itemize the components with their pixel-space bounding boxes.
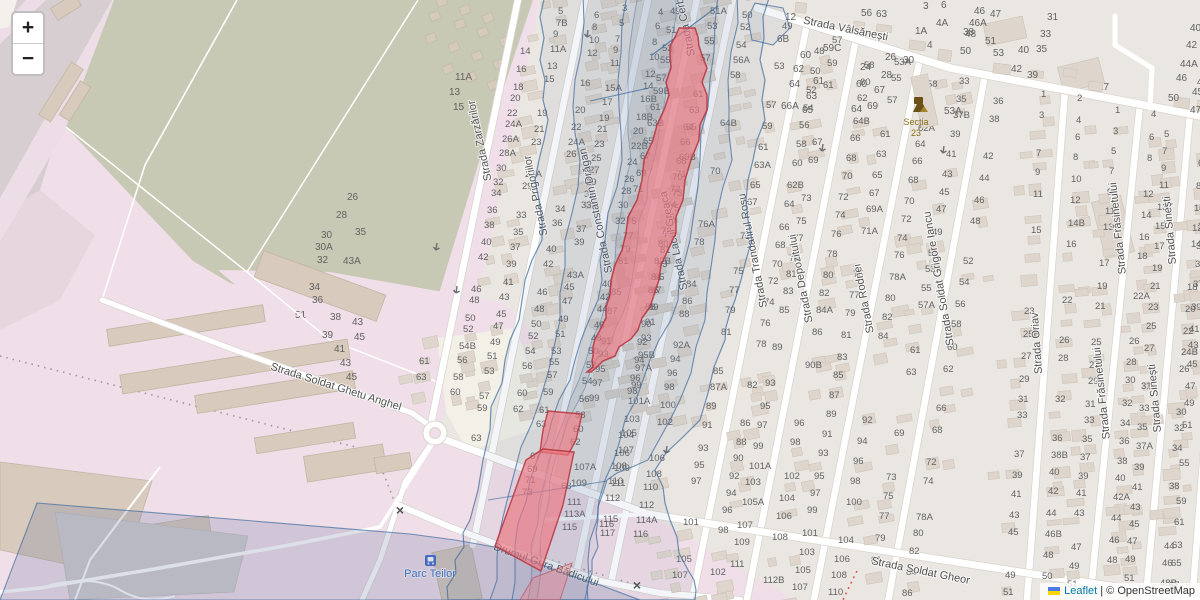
svg-text:63: 63 [1172, 540, 1183, 551]
svg-text:39: 39 [506, 259, 517, 270]
svg-text:28: 28 [1126, 357, 1137, 368]
svg-text:3: 3 [1113, 126, 1118, 137]
svg-text:106: 106 [776, 511, 792, 522]
svg-text:5: 5 [1111, 146, 1116, 157]
svg-text:65: 65 [1171, 558, 1182, 569]
svg-text:86: 86 [812, 327, 823, 338]
svg-text:53A: 53A [944, 106, 962, 117]
svg-text:28: 28 [1058, 353, 1069, 364]
svg-text:58: 58 [796, 139, 807, 150]
svg-text:79: 79 [845, 308, 856, 319]
svg-text:63: 63 [876, 149, 887, 160]
svg-text:82: 82 [819, 288, 830, 299]
svg-text:51: 51 [985, 36, 997, 47]
svg-text:66: 66 [850, 133, 861, 144]
svg-text:38: 38 [989, 114, 1000, 125]
svg-text:47: 47 [936, 204, 947, 215]
svg-text:101: 101 [683, 517, 699, 528]
svg-text:109: 109 [734, 537, 750, 548]
svg-text:85: 85 [713, 366, 724, 377]
svg-text:26: 26 [347, 192, 359, 203]
svg-text:42: 42 [1048, 486, 1059, 497]
svg-text:96: 96 [853, 456, 864, 467]
svg-text:93: 93 [698, 443, 709, 454]
svg-text:93: 93 [765, 378, 776, 389]
svg-text:37A: 37A [1136, 441, 1154, 452]
svg-text:59: 59 [1176, 496, 1187, 507]
svg-text:91: 91 [702, 420, 713, 431]
svg-text:35: 35 [1137, 422, 1148, 433]
svg-text:12: 12 [1143, 189, 1154, 200]
svg-text:32: 32 [317, 255, 329, 266]
svg-text:35: 35 [1036, 44, 1048, 55]
svg-text:61: 61 [880, 129, 891, 140]
svg-text:3: 3 [1039, 110, 1044, 121]
svg-text:62: 62 [793, 64, 805, 75]
svg-text:58: 58 [453, 372, 464, 383]
svg-text:80: 80 [913, 528, 924, 539]
svg-text:85: 85 [833, 370, 844, 381]
svg-text:31: 31 [1047, 12, 1059, 23]
svg-text:29: 29 [1019, 374, 1030, 385]
svg-text:37: 37 [510, 242, 521, 253]
svg-text:75: 75 [796, 216, 807, 227]
svg-text:74: 74 [897, 233, 908, 244]
svg-text:45: 45 [354, 332, 366, 343]
svg-text:66: 66 [779, 222, 790, 233]
svg-text:35: 35 [956, 94, 967, 105]
svg-text:46: 46 [974, 6, 986, 17]
svg-text:53: 53 [484, 366, 495, 377]
svg-text:14B: 14B [1068, 218, 1085, 229]
svg-text:51: 51 [1003, 587, 1014, 598]
svg-text:103: 103 [799, 547, 815, 558]
svg-text:57: 57 [766, 100, 777, 111]
svg-text:43: 43 [1074, 508, 1085, 519]
svg-text:51: 51 [1182, 420, 1193, 431]
svg-text:84A: 84A [816, 305, 834, 316]
svg-text:6: 6 [1075, 132, 1080, 143]
svg-text:61: 61 [823, 80, 834, 91]
svg-text:28A: 28A [499, 148, 517, 159]
svg-text:101A: 101A [749, 461, 772, 472]
svg-text:78: 78 [827, 249, 838, 260]
svg-text:51: 51 [487, 351, 498, 362]
svg-text:88: 88 [736, 437, 747, 448]
svg-text:96: 96 [794, 418, 805, 429]
svg-text:1A: 1A [915, 26, 928, 37]
svg-text:63: 63 [806, 91, 818, 102]
svg-text:80: 80 [885, 293, 896, 304]
svg-text:83: 83 [783, 286, 794, 297]
svg-text:46: 46 [1109, 535, 1120, 546]
svg-text:63: 63 [906, 367, 917, 378]
svg-text:69: 69 [808, 155, 819, 166]
svg-text:25: 25 [1146, 321, 1157, 332]
svg-text:72: 72 [838, 192, 849, 203]
svg-text:41: 41 [334, 344, 346, 355]
svg-text:53: 53 [993, 48, 1005, 59]
svg-text:42A: 42A [1113, 492, 1131, 503]
svg-text:45: 45 [1192, 87, 1200, 98]
svg-text:45: 45 [939, 187, 950, 198]
svg-text:44: 44 [979, 173, 990, 184]
svg-text:31: 31 [1085, 399, 1096, 410]
svg-text:41: 41 [1011, 489, 1022, 500]
svg-text:73: 73 [886, 472, 897, 483]
svg-text:43: 43 [1130, 502, 1141, 513]
svg-text:38: 38 [1169, 481, 1180, 492]
svg-text:30: 30 [1125, 375, 1136, 386]
svg-text:40: 40 [1018, 45, 1030, 56]
svg-text:19: 19 [1097, 281, 1108, 292]
svg-text:72: 72 [926, 457, 937, 468]
svg-text:83: 83 [837, 352, 848, 363]
svg-text:26: 26 [885, 52, 897, 63]
svg-text:104: 104 [779, 493, 795, 504]
svg-text:26: 26 [1129, 336, 1140, 347]
svg-text:54: 54 [959, 277, 970, 288]
svg-text:99: 99 [807, 505, 818, 516]
svg-text:6: 6 [1149, 132, 1154, 143]
svg-text:66: 66 [936, 403, 947, 414]
svg-text:21: 21 [1095, 301, 1106, 312]
svg-text:68: 68 [846, 153, 857, 164]
svg-text:15: 15 [453, 102, 465, 113]
svg-text:45: 45 [496, 309, 507, 320]
svg-text:21: 21 [534, 124, 545, 135]
svg-text:8: 8 [1147, 153, 1152, 164]
svg-text:49: 49 [1005, 570, 1016, 581]
svg-text:23: 23 [911, 128, 921, 138]
svg-text:43: 43 [499, 292, 510, 303]
svg-text:99: 99 [753, 441, 764, 452]
svg-text:69A: 69A [866, 204, 884, 215]
svg-text:63A: 63A [754, 160, 772, 171]
svg-text:48: 48 [469, 295, 480, 306]
svg-text:39: 39 [950, 129, 961, 140]
svg-text:94: 94 [726, 488, 737, 499]
svg-text:49: 49 [1069, 561, 1080, 572]
svg-text:106: 106 [834, 554, 850, 565]
svg-text:11A: 11A [455, 72, 472, 83]
svg-text:47: 47 [1185, 381, 1196, 392]
svg-text:64: 64 [851, 104, 863, 115]
svg-text:75: 75 [883, 491, 894, 502]
svg-text:44A: 44A [1180, 59, 1198, 70]
svg-text:61: 61 [758, 142, 769, 153]
svg-text:47: 47 [1190, 105, 1200, 116]
svg-text:57A: 57A [918, 300, 936, 311]
svg-text:63: 63 [416, 372, 427, 383]
svg-text:72: 72 [901, 214, 912, 225]
svg-text:86: 86 [740, 418, 751, 429]
svg-text:16: 16 [1139, 232, 1150, 243]
svg-text:61: 61 [910, 345, 921, 356]
svg-text:48: 48 [1043, 550, 1054, 561]
svg-text:68: 68 [932, 425, 943, 436]
svg-text:23: 23 [531, 137, 542, 148]
svg-text:103: 103 [745, 477, 761, 488]
svg-text:37: 37 [1193, 279, 1200, 290]
svg-text:Secția: Secția [903, 117, 928, 127]
svg-text:39: 39 [322, 330, 334, 341]
svg-text:33: 33 [1084, 415, 1095, 426]
svg-text:64: 64 [784, 199, 795, 210]
svg-text:70: 70 [842, 171, 853, 182]
svg-text:76: 76 [760, 318, 771, 329]
svg-text:76: 76 [894, 250, 905, 261]
svg-text:72: 72 [768, 276, 779, 287]
svg-text:66: 66 [912, 156, 923, 167]
svg-text:14: 14 [1141, 210, 1152, 221]
svg-text:4: 4 [927, 40, 933, 51]
svg-text:17: 17 [1099, 258, 1110, 269]
svg-text:55: 55 [1179, 458, 1190, 469]
svg-text:35: 35 [1082, 434, 1093, 445]
svg-text:61: 61 [419, 356, 430, 367]
svg-text:73: 73 [801, 193, 812, 204]
svg-text:36: 36 [1119, 436, 1130, 447]
svg-text:67: 67 [869, 188, 880, 199]
svg-text:64: 64 [789, 79, 801, 90]
svg-text:81: 81 [841, 330, 852, 341]
svg-text:64: 64 [915, 139, 926, 150]
svg-text:82: 82 [747, 380, 758, 391]
svg-text:32: 32 [1055, 394, 1066, 405]
svg-text:38: 38 [484, 220, 495, 231]
svg-text:40: 40 [1049, 467, 1060, 478]
svg-text:63: 63 [471, 433, 482, 444]
svg-text:30A: 30A [315, 242, 333, 253]
svg-text:40: 40 [1190, 23, 1200, 34]
svg-text:49: 49 [1125, 554, 1136, 565]
svg-text:44: 44 [1111, 513, 1122, 524]
svg-text:2: 2 [1077, 93, 1082, 104]
svg-text:59C: 59C [823, 43, 841, 54]
svg-text:41: 41 [1076, 488, 1087, 499]
svg-text:89: 89 [826, 409, 837, 420]
svg-text:47: 47 [493, 321, 504, 332]
svg-text:90B: 90B [805, 360, 822, 371]
svg-text:39: 39 [1027, 70, 1039, 81]
svg-text:49: 49 [490, 337, 501, 348]
svg-text:36: 36 [312, 295, 324, 306]
svg-text:20: 20 [510, 93, 521, 104]
svg-text:46B: 46B [1045, 529, 1062, 540]
svg-text:62: 62 [857, 93, 868, 104]
svg-text:60: 60 [800, 50, 812, 61]
svg-text:108: 108 [831, 570, 847, 581]
svg-text:87A: 87A [710, 382, 728, 393]
svg-text:7: 7 [1036, 148, 1041, 159]
svg-text:80: 80 [823, 270, 834, 281]
svg-text:108: 108 [772, 532, 788, 543]
svg-text:26: 26 [1059, 335, 1070, 346]
svg-text:89: 89 [772, 342, 783, 353]
svg-text:59: 59 [477, 403, 488, 414]
svg-text:25: 25 [1091, 337, 1102, 348]
svg-text:40: 40 [1115, 473, 1126, 484]
svg-text:54B: 54B [459, 341, 476, 352]
svg-text:21: 21 [1150, 281, 1161, 292]
svg-text:50: 50 [465, 313, 476, 324]
svg-text:42: 42 [1011, 64, 1023, 75]
svg-text:60: 60 [856, 79, 868, 90]
svg-text:18: 18 [1137, 251, 1148, 262]
svg-text:23: 23 [1148, 302, 1159, 313]
svg-text:62B: 62B [787, 180, 804, 191]
svg-text:42: 42 [478, 252, 489, 263]
svg-text:11: 11 [1033, 189, 1043, 200]
svg-text:95: 95 [814, 471, 825, 482]
svg-text:42: 42 [1186, 40, 1198, 51]
svg-text:46: 46 [974, 195, 985, 206]
svg-text:30: 30 [496, 163, 507, 174]
svg-text:31: 31 [1018, 394, 1029, 405]
svg-text:30: 30 [903, 55, 915, 66]
svg-text:34: 34 [491, 188, 502, 199]
svg-text:65: 65 [802, 105, 814, 116]
svg-text:62: 62 [943, 364, 954, 375]
svg-text:78: 78 [756, 339, 767, 350]
svg-text:38B: 38B [1051, 450, 1068, 461]
svg-text:28: 28 [336, 210, 348, 221]
svg-text:65: 65 [872, 170, 883, 181]
svg-text:105: 105 [795, 565, 811, 576]
svg-text:47: 47 [1071, 542, 1082, 553]
svg-text:74: 74 [835, 210, 846, 221]
svg-text:104: 104 [838, 535, 854, 546]
svg-text:69: 69 [894, 428, 905, 439]
svg-text:43: 43 [942, 169, 953, 180]
svg-text:59: 59 [827, 58, 838, 69]
svg-text:89: 89 [706, 401, 717, 412]
svg-text:28: 28 [881, 70, 893, 81]
svg-text:111: 111 [730, 559, 744, 570]
svg-text:48: 48 [970, 216, 981, 227]
svg-text:7: 7 [1162, 146, 1167, 157]
svg-text:39: 39 [1012, 470, 1023, 481]
svg-text:95: 95 [694, 460, 705, 471]
svg-text:1: 1 [1041, 89, 1046, 100]
svg-text:77: 77 [879, 511, 890, 522]
svg-text:56: 56 [955, 299, 966, 310]
svg-text:79: 79 [875, 533, 886, 544]
svg-text:67: 67 [874, 85, 886, 96]
svg-text:60: 60 [450, 387, 461, 398]
svg-text:39: 39 [1134, 462, 1145, 473]
svg-text:1: 1 [1115, 105, 1120, 116]
svg-text:38: 38 [963, 27, 975, 38]
svg-text:78A: 78A [916, 512, 934, 523]
svg-text:52: 52 [463, 324, 474, 335]
svg-text:32: 32 [493, 177, 504, 188]
svg-text:43: 43 [1188, 340, 1199, 351]
svg-text:107: 107 [792, 582, 808, 593]
svg-text:55: 55 [891, 73, 902, 84]
svg-text:53: 53 [774, 61, 785, 72]
svg-text:37: 37 [1014, 449, 1025, 460]
svg-text:39: 39 [1078, 471, 1089, 482]
svg-text:48: 48 [1107, 555, 1118, 566]
svg-text:101: 101 [802, 528, 818, 539]
svg-text:22: 22 [507, 108, 518, 119]
svg-text:10: 10 [1071, 174, 1082, 185]
svg-text:78A: 78A [889, 272, 907, 283]
svg-text:97: 97 [810, 488, 821, 499]
svg-text:11: 11 [1159, 180, 1169, 191]
svg-text:43: 43 [352, 317, 364, 328]
svg-text:22: 22 [1062, 295, 1073, 306]
svg-text:3: 3 [923, 1, 929, 12]
svg-text:86: 86 [902, 588, 913, 599]
svg-text:61: 61 [813, 76, 825, 87]
svg-text:26A: 26A [502, 134, 520, 145]
svg-text:87: 87 [829, 390, 840, 401]
svg-text:18: 18 [513, 82, 524, 93]
svg-text:55: 55 [921, 283, 932, 294]
svg-text:34: 34 [1120, 418, 1131, 429]
svg-text:45: 45 [346, 372, 358, 383]
svg-text:98: 98 [790, 437, 801, 448]
svg-text:5: 5 [1164, 129, 1169, 140]
svg-text:112B: 112B [763, 575, 784, 586]
svg-text:41: 41 [1132, 482, 1143, 493]
svg-text:38: 38 [330, 312, 342, 323]
svg-text:14: 14 [520, 46, 531, 57]
svg-text:47: 47 [990, 9, 1002, 20]
svg-text:24A: 24A [505, 119, 523, 130]
svg-text:44: 44 [1046, 508, 1057, 519]
svg-text:90: 90 [733, 453, 744, 464]
svg-text:82: 82 [909, 546, 920, 557]
svg-text:33: 33 [959, 76, 970, 87]
svg-text:56: 56 [799, 120, 810, 131]
svg-text:107: 107 [737, 520, 753, 531]
svg-text:32: 32 [1122, 398, 1133, 409]
svg-text:4: 4 [1076, 115, 1081, 126]
svg-text:69: 69 [867, 101, 879, 112]
svg-text:68: 68 [775, 240, 786, 251]
svg-text:105A: 105A [742, 497, 765, 508]
svg-text:45: 45 [1187, 359, 1198, 370]
svg-text:35: 35 [513, 227, 524, 238]
svg-text:8: 8 [1073, 152, 1078, 163]
svg-text:6: 6 [941, 0, 947, 11]
svg-text:8: 8 [1196, 181, 1200, 192]
svg-text:70: 70 [904, 196, 915, 207]
svg-text:43A: 43A [343, 256, 361, 267]
svg-text:50: 50 [1168, 93, 1180, 104]
svg-text:97: 97 [757, 420, 768, 431]
svg-text:39: 39 [1191, 302, 1200, 313]
svg-text:41: 41 [946, 149, 957, 160]
svg-text:45: 45 [1129, 519, 1140, 530]
svg-text:36: 36 [1052, 433, 1063, 444]
svg-text:76: 76 [831, 229, 842, 240]
svg-text:16: 16 [516, 64, 527, 75]
svg-text:40: 40 [481, 237, 492, 248]
svg-text:×: × [396, 502, 404, 518]
svg-text:4: 4 [1151, 109, 1156, 120]
svg-text:97: 97 [691, 476, 702, 487]
svg-text:27: 27 [1021, 351, 1032, 362]
svg-text:102: 102 [710, 567, 726, 578]
svg-text:50: 50 [1042, 571, 1053, 582]
svg-text:96: 96 [722, 505, 733, 516]
svg-text:33: 33 [1196, 241, 1200, 252]
